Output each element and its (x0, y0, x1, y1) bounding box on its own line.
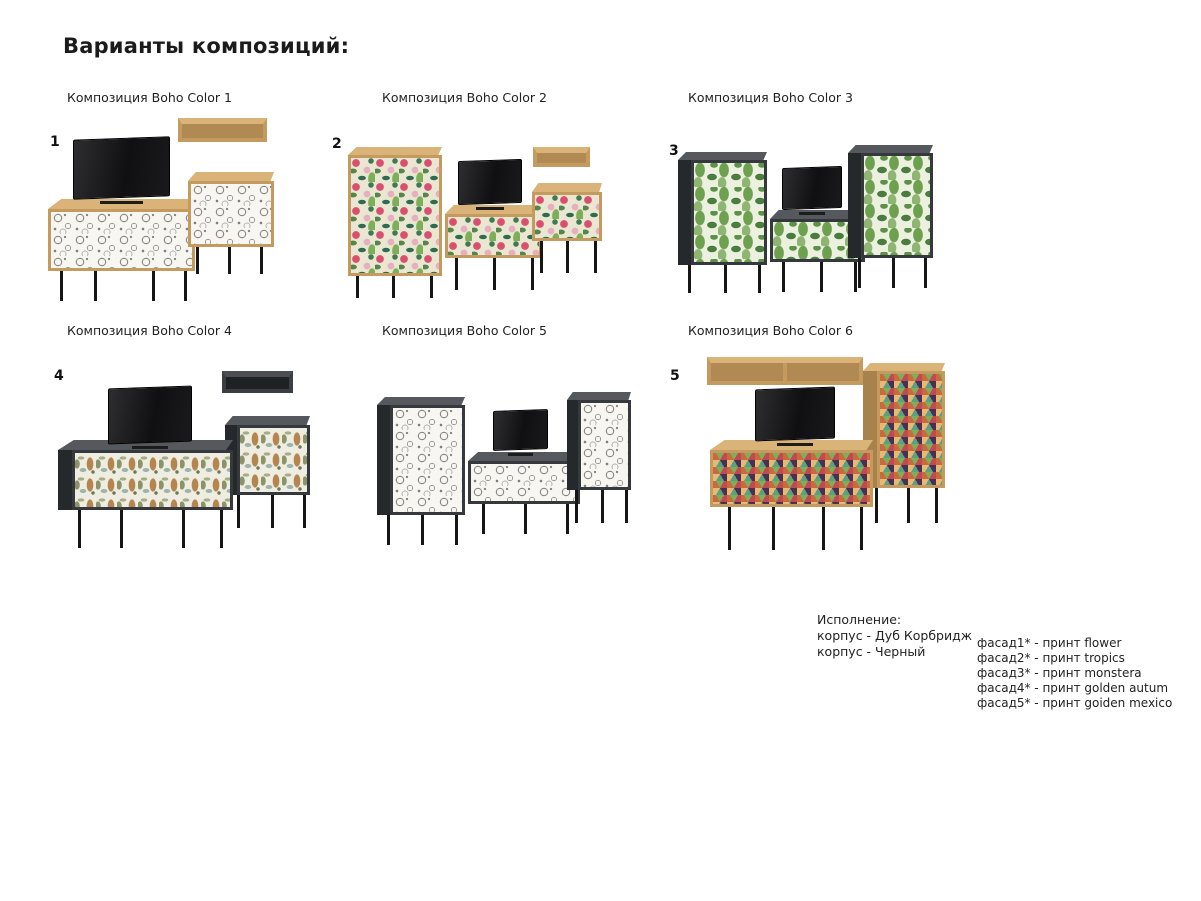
legend-facade-line: фасад2* - принт tropics (977, 651, 1172, 666)
tv-screen (493, 409, 548, 451)
mexico-print-front (877, 371, 945, 488)
small-cabinet (532, 183, 602, 273)
tv-stand (445, 205, 542, 290)
autumn-print-front (237, 425, 310, 495)
tv-screen (73, 136, 170, 199)
monstera-print-front (861, 153, 933, 258)
composition-2: Композиция Boho Color 2 2 (330, 88, 630, 328)
tall-cabinet (348, 147, 442, 298)
mexico-print-front (710, 450, 873, 507)
tropics-print-front (532, 192, 602, 241)
tall-cabinet (567, 392, 631, 523)
legend-facade-prints: фасад1* - принт flower фасад2* - принт t… (977, 636, 1172, 711)
tv-stand (799, 212, 825, 215)
composition-4-label: Композиция Boho Color 4 (67, 323, 232, 338)
wall-shelf (533, 147, 590, 167)
tall-cabinet (678, 152, 767, 293)
tv-stand (777, 443, 812, 446)
composition-6-label: Композиция Boho Color 6 (688, 323, 853, 338)
composition-4-number: 4 (54, 368, 64, 384)
cabinet (225, 416, 310, 528)
legend-body-colors: Исполнение: корпус - Дуб Корбридж корпус… (817, 612, 972, 660)
catalog-page: Варианты композиций: Композиция Boho Col… (0, 0, 1201, 901)
composition-1-label: Композиция Boho Color 1 (67, 90, 232, 105)
composition-2-label: Композиция Boho Color 2 (382, 90, 547, 105)
tv (782, 167, 842, 215)
tv (493, 410, 548, 456)
tv-stand (132, 446, 169, 449)
tv-screen (458, 159, 522, 205)
tv (458, 160, 522, 210)
tall-cabinet (848, 145, 933, 288)
tv-stand (100, 201, 143, 204)
composition-6: Композиция Boho Color 6 5 (660, 321, 960, 566)
legend-title: Исполнение: (817, 612, 972, 628)
composition-3-label: Композиция Boho Color 3 (688, 90, 853, 105)
tv-sideboard (710, 440, 873, 550)
tv (73, 138, 170, 204)
tv-stand (508, 453, 532, 456)
tv-stand (468, 452, 580, 534)
composition-5-label: Композиция Boho Color 5 (382, 323, 547, 338)
tv-sideboard (58, 440, 233, 548)
flower-print-front (468, 461, 580, 504)
cabinet (188, 172, 274, 274)
tv-sideboard (48, 199, 195, 301)
tropics-print-front (445, 214, 542, 258)
shelf-divider (783, 363, 787, 381)
tropics-print-front (348, 155, 442, 276)
flower-print-front (48, 209, 195, 271)
composition-1-number: 1 (50, 134, 60, 150)
tall-cabinet (863, 363, 945, 523)
legend-facade-line: фасад5* - принт goiden mexico (977, 696, 1172, 711)
tv (755, 388, 835, 446)
tv-screen (755, 387, 835, 442)
composition-2-number: 2 (332, 136, 342, 152)
flower-print-front (578, 400, 631, 490)
composition-4: Композиция Boho Color 4 4 (45, 321, 345, 566)
tv-screen (108, 386, 192, 445)
double-wall-shelf (707, 357, 863, 385)
autumn-print-front (72, 450, 233, 510)
tv-stand (476, 207, 504, 210)
tv (108, 387, 192, 449)
composition-6-number: 5 (670, 368, 680, 384)
tv-screen (782, 166, 842, 210)
composition-3: Композиция Boho Color 3 3 (660, 88, 960, 328)
legend-body-line: корпус - Черный (817, 644, 972, 660)
composition-5: Композиция Boho Color 5 (355, 321, 645, 566)
page-title: Варианты композиций: (63, 34, 349, 58)
tall-cabinet (377, 397, 465, 545)
composition-1: Композиция Boho Color 1 1 (45, 88, 330, 328)
legend-body-line: корпус - Дуб Корбридж (817, 628, 972, 644)
monstera-print-front (691, 160, 767, 265)
legend-facade-line: фасад4* - принт golden autum (977, 681, 1172, 696)
flower-print-front (188, 181, 274, 247)
flower-print-front (390, 405, 465, 515)
wall-shelf (178, 118, 267, 142)
legend-facade-line: фасад1* - принт flower (977, 636, 1172, 651)
legend-facade-line: фасад3* - принт monstera (977, 666, 1172, 681)
wall-shelf (222, 371, 293, 393)
